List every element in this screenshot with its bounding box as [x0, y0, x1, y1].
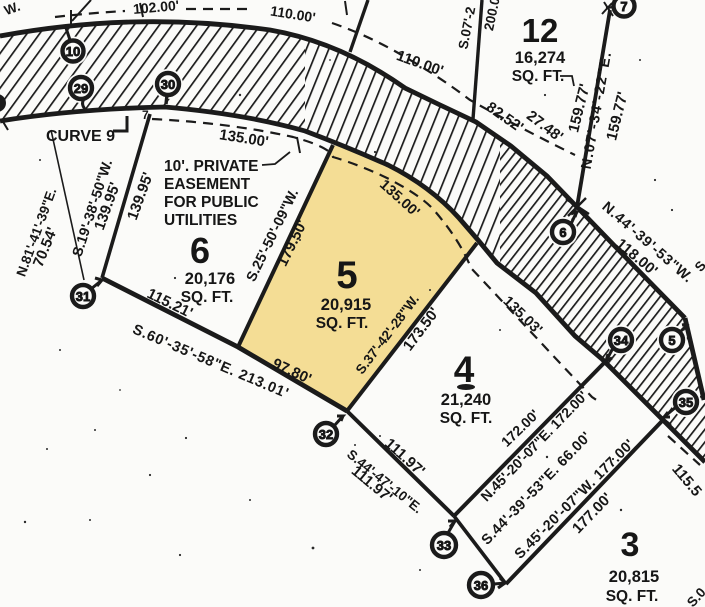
svg-text:12: 12 [522, 12, 559, 49]
svg-text:SQ. FT.: SQ. FT. [606, 588, 659, 605]
svg-text:36: 36 [474, 578, 488, 593]
svg-text:4: 4 [454, 349, 475, 390]
svg-text:10: 10 [66, 44, 80, 59]
svg-text:20,176: 20,176 [185, 270, 235, 288]
svg-text:21,240: 21,240 [441, 391, 491, 409]
svg-text:7: 7 [620, 0, 627, 14]
svg-text:FOR PUBLIC: FOR PUBLIC [164, 194, 259, 211]
svg-text:CURVE 9: CURVE 9 [46, 128, 115, 145]
svg-text:30: 30 [161, 77, 175, 92]
svg-text:6: 6 [559, 225, 566, 240]
svg-text:32: 32 [319, 427, 333, 442]
svg-text:10'. PRIVATE: 10'. PRIVATE [164, 158, 258, 175]
svg-text:UTILITIES: UTILITIES [164, 212, 237, 229]
svg-text:3: 3 [621, 526, 640, 564]
svg-text:16,274: 16,274 [515, 49, 566, 67]
svg-text:SQ. FT.: SQ. FT. [440, 410, 493, 427]
svg-text:7: 7 [142, 108, 149, 122]
svg-text:SQ. FT.: SQ. FT. [316, 315, 369, 332]
svg-text:EASEMENT: EASEMENT [164, 176, 251, 193]
svg-text:29: 29 [74, 81, 88, 96]
svg-text:31: 31 [76, 289, 90, 304]
svg-text:34: 34 [614, 333, 629, 348]
svg-text:6: 6 [190, 230, 210, 271]
svg-text:20,815: 20,815 [609, 568, 659, 586]
svg-text:5: 5 [336, 254, 357, 297]
svg-text:35: 35 [679, 395, 693, 410]
svg-text:20,915: 20,915 [321, 296, 371, 314]
svg-text:SQ. FT.: SQ. FT. [512, 68, 565, 85]
svg-text:5: 5 [668, 333, 675, 348]
svg-text:33: 33 [437, 538, 451, 553]
